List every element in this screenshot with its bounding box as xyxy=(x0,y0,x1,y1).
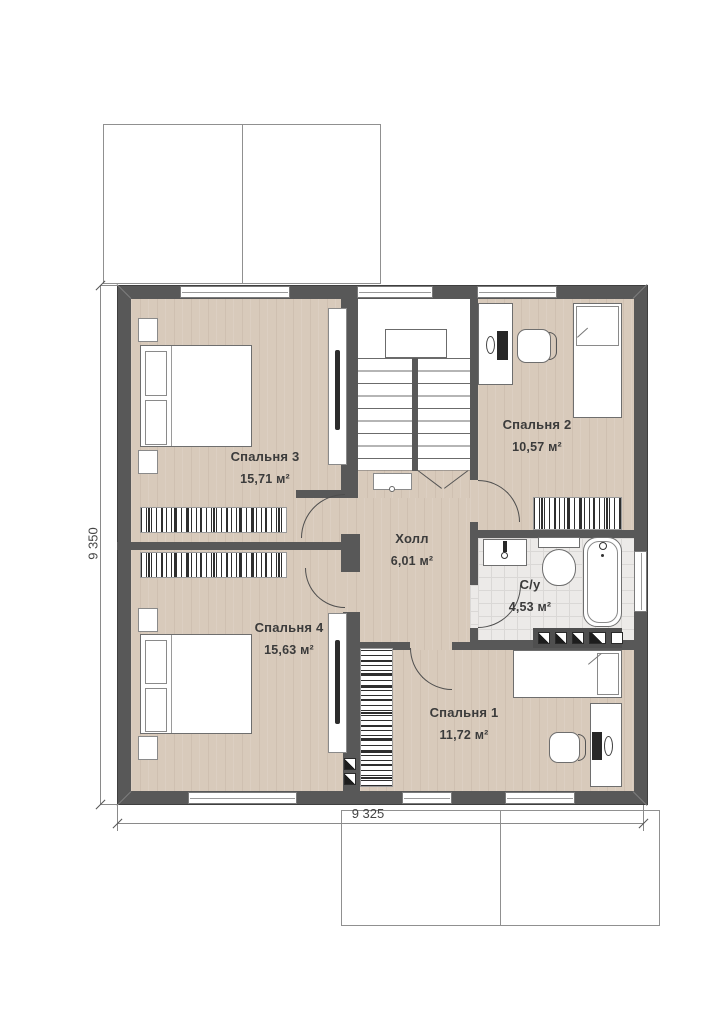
room-label-bedroom2: Спальня 2 10,57 м² xyxy=(467,414,607,458)
dimension-extension xyxy=(100,285,118,286)
chair-back xyxy=(549,332,557,360)
room-label-bedroom3: Спальня 3 15,71 м² xyxy=(195,446,335,490)
window xyxy=(402,792,452,804)
room-name: Спальня 2 xyxy=(467,414,607,436)
shelf-cell xyxy=(572,632,584,644)
shelf-cell xyxy=(538,632,550,644)
headphones-icon xyxy=(604,736,613,756)
dimension-extension xyxy=(117,805,118,831)
window xyxy=(477,286,557,298)
monitor-icon xyxy=(592,732,602,760)
wardrobe xyxy=(533,497,622,530)
nightstand xyxy=(138,736,158,760)
dimension-label-horizontal: 9 325 xyxy=(328,806,408,821)
dimension-extension xyxy=(643,805,644,831)
chair xyxy=(517,329,551,363)
window xyxy=(634,551,647,612)
room-label-bedroom4: Спальня 4 15,63 м² xyxy=(219,617,359,661)
speaker-icon xyxy=(486,336,495,354)
tv-icon xyxy=(335,350,340,430)
room-name: Спальня 1 xyxy=(394,702,534,724)
toilet-tank xyxy=(538,537,580,548)
room-area: 4,53 м² xyxy=(460,596,600,618)
shelf-cell-empty xyxy=(611,632,623,644)
shelf-cell xyxy=(589,632,606,644)
room-area: 6,01 м² xyxy=(342,550,482,572)
pillow xyxy=(145,400,167,445)
room-name: Спальня 3 xyxy=(195,446,335,468)
room-area: 15,63 м² xyxy=(219,639,359,661)
pillow xyxy=(145,351,167,396)
dimension-label-vertical: 9 350 xyxy=(86,514,101,574)
window xyxy=(357,286,433,298)
wardrobe xyxy=(140,507,287,533)
pillow xyxy=(145,640,167,684)
chair-back xyxy=(578,734,586,761)
roof-outline-top-divider xyxy=(242,125,243,283)
room-name: Холл xyxy=(342,528,482,550)
nightstand xyxy=(138,318,158,342)
blanket-line xyxy=(171,346,172,446)
roof-outline-bottom-divider xyxy=(500,811,501,925)
window xyxy=(505,792,575,804)
window xyxy=(180,286,290,298)
shelf-cell xyxy=(555,632,567,644)
dimension-extension xyxy=(100,804,118,805)
faucet-dot xyxy=(501,552,508,559)
wardrobe xyxy=(140,552,287,578)
bathtub-drain-dot xyxy=(601,554,604,557)
floor-plan-canvas: Спальня 3 15,71 м² Спальня 2 10,57 м² Хо… xyxy=(0,0,725,1024)
room-area: 11,72 м² xyxy=(394,724,534,746)
dimension-line-horizontal xyxy=(117,823,644,824)
pillow xyxy=(597,653,619,695)
room-name: С/у xyxy=(460,574,600,596)
nightstand xyxy=(138,450,158,474)
duct-symbol xyxy=(344,758,356,770)
window xyxy=(188,792,297,804)
wardrobe xyxy=(360,648,393,787)
room-area: 10,57 м² xyxy=(467,436,607,458)
bathtub-faucet xyxy=(599,542,607,550)
pillow xyxy=(576,306,619,346)
chair xyxy=(549,732,580,763)
wall-bedrooms34-divider xyxy=(117,542,343,550)
staircase-newel-dot xyxy=(389,486,395,492)
monitor-icon xyxy=(497,331,508,360)
faucet-icon xyxy=(503,541,507,552)
blanket-line xyxy=(171,635,172,733)
room-area: 15,71 м² xyxy=(195,468,335,490)
pillow xyxy=(145,688,167,732)
duct-symbol xyxy=(344,773,356,785)
bedroom2-door-gap xyxy=(470,480,478,522)
room-name: Спальня 4 xyxy=(219,617,359,639)
staircase-void-outline xyxy=(385,329,447,358)
staircase-stringer xyxy=(412,358,418,471)
room-label-hall: Холл 6,01 м² xyxy=(342,528,482,572)
nightstand xyxy=(138,608,158,632)
room-label-bathroom: С/у 4,53 м² xyxy=(460,574,600,618)
room-label-bedroom1: Спальня 1 11,72 м² xyxy=(394,702,534,746)
